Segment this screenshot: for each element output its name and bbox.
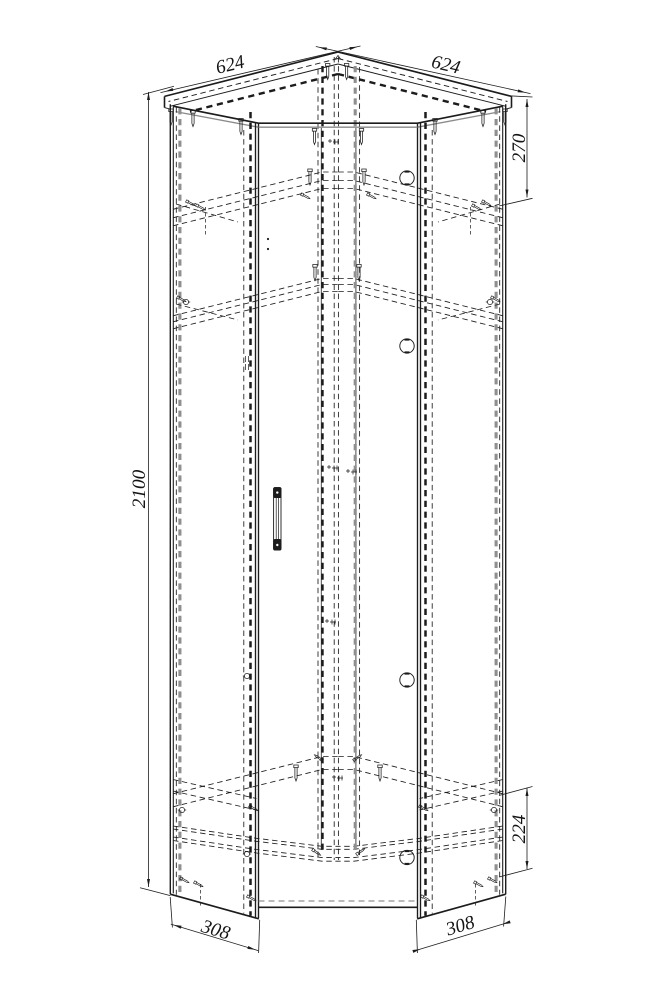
svg-text:224: 224 bbox=[509, 814, 530, 843]
svg-text:270: 270 bbox=[509, 133, 530, 162]
svg-text:2100: 2100 bbox=[129, 469, 150, 508]
